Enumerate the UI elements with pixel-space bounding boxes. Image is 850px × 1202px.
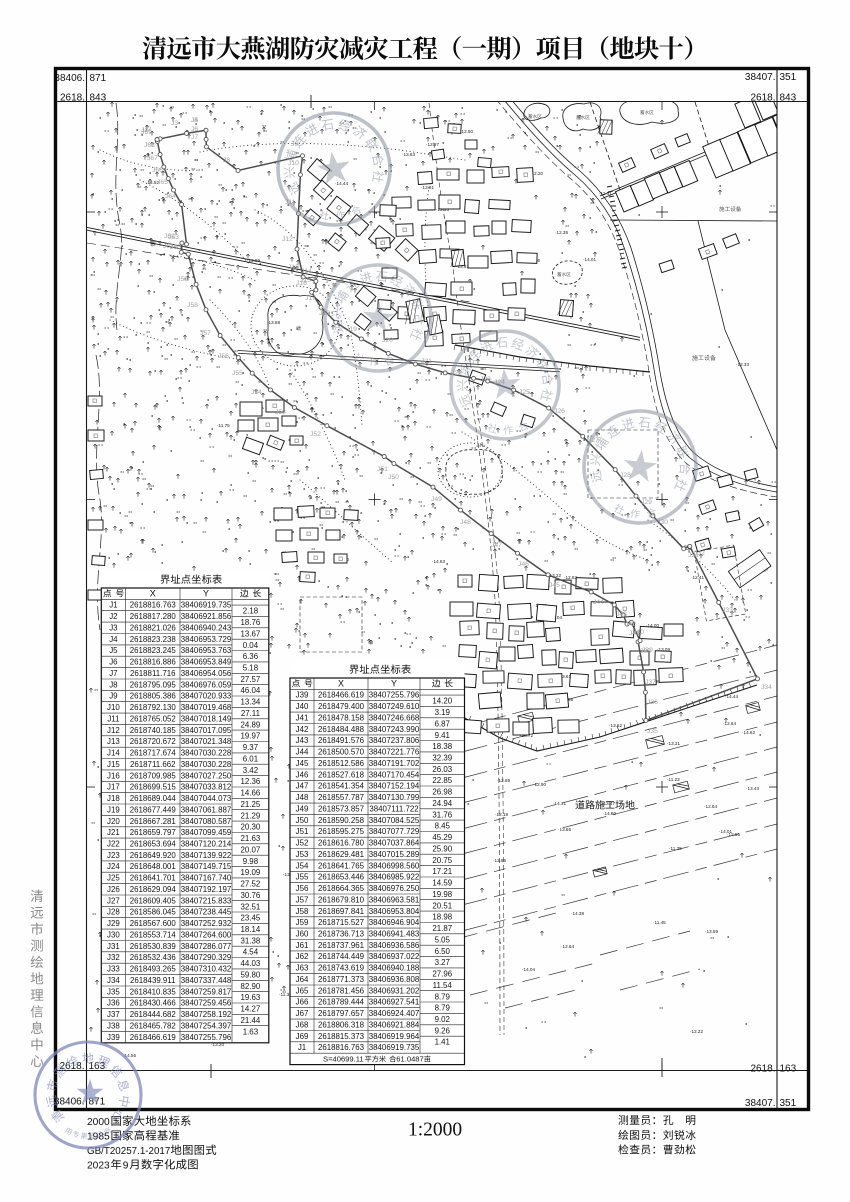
svg-text:2618530.839: 2618530.839 [130,942,177,951]
svg-text:2618667.281: 2618667.281 [130,817,176,826]
svg-text:38407215.833: 38407215.833 [181,896,232,905]
svg-text:J56: J56 [296,884,309,893]
svg-text:J27: J27 [107,896,120,905]
svg-text:38407111.722: 38407111.722 [369,804,418,813]
svg-text:38407246.668: 38407246.668 [369,714,420,723]
svg-text:38406953.729: 38406953.729 [181,635,232,644]
svg-text:2618781.456: 2618781.456 [318,986,365,995]
svg-text:27.57: 27.57 [241,675,261,684]
svg-text:J15: J15 [107,760,120,769]
svg-text:38407152.194: 38407152.194 [369,782,420,791]
svg-text:38407238.445: 38407238.445 [181,908,232,917]
svg-text:J10: J10 [107,703,120,712]
svg-text:27.52: 27.52 [241,880,261,889]
svg-text:·14.01: ·14.01 [583,257,596,262]
svg-text:J68: J68 [296,1021,309,1030]
svg-text:J1: J1 [109,601,117,610]
svg-text:9.98: 9.98 [243,857,259,866]
svg-text:8.45: 8.45 [435,822,451,831]
svg-text:2618465.782: 2618465.782 [130,1021,176,1030]
svg-text:871: 871 [90,73,107,84]
svg-text:2618765.052: 2618765.052 [130,714,176,723]
svg-text:J60: J60 [296,930,309,939]
svg-text:12.36: 12.36 [241,777,261,786]
svg-text:·14.04: ·14.04 [522,967,535,972]
svg-text:27.96: 27.96 [432,970,452,979]
svg-text:X: X [150,589,156,599]
svg-text:38406927.541: 38406927.541 [369,998,419,1007]
svg-text:J63: J63 [168,234,179,241]
svg-text:2618806.318: 2618806.318 [318,1021,365,1030]
svg-text:2618711.662: 2618711.662 [130,760,176,769]
svg-text:2618740.185: 2618740.185 [130,726,177,735]
svg-text:J49: J49 [431,496,442,503]
svg-text:J26: J26 [107,885,120,894]
svg-text:38407.: 38407. [745,72,776,83]
svg-text:59.80: 59.80 [241,971,261,980]
svg-text:·13.59: ·13.59 [705,929,718,934]
svg-text:2.18: 2.18 [243,607,259,616]
svg-text:38407255.796: 38407255.796 [369,691,420,700]
svg-text:9.26: 9.26 [435,1026,451,1035]
svg-text:14.59: 14.59 [432,879,452,888]
svg-text:J65: J65 [296,986,309,995]
svg-text:20.30: 20.30 [241,823,261,832]
svg-text:J55: J55 [296,873,309,882]
svg-text:38407020.933: 38407020.933 [181,692,232,701]
svg-text:843: 843 [780,93,797,104]
svg-text:0.04: 0.04 [243,641,259,650]
svg-text:2618478.158: 2618478.158 [318,714,365,723]
svg-text:J66: J66 [152,167,163,174]
svg-text:2618500.570: 2618500.570 [318,748,365,757]
svg-text:38406953.849: 38406953.849 [181,658,232,667]
svg-text:38406931.202: 38406931.202 [369,986,419,995]
svg-text:2618567.600: 2618567.600 [130,919,177,928]
svg-text:18.38: 18.38 [432,742,452,751]
svg-text:J44: J44 [296,748,309,757]
svg-text:26.98: 26.98 [432,788,452,797]
svg-text:J63: J63 [296,964,309,973]
svg-text:843: 843 [90,93,107,104]
svg-text:J16: J16 [107,771,120,780]
svg-text:J39: J39 [107,1033,120,1042]
svg-text:2618541.354: 2618541.354 [318,782,365,791]
svg-text:2618805.386: 2618805.386 [130,692,177,701]
svg-text:20.07: 20.07 [241,845,261,854]
svg-text:J53: J53 [296,850,309,859]
svg-text:2618653.446: 2618653.446 [318,873,365,882]
svg-text:38407037.864: 38407037.864 [369,839,420,848]
svg-text:·12.85: ·12.85 [493,858,506,863]
svg-text:38407099.459: 38407099.459 [181,828,232,837]
svg-text:J45: J45 [549,582,560,589]
svg-text:2618792.130: 2618792.130 [130,703,177,712]
svg-text:11.54: 11.54 [433,981,453,990]
svg-text:J20: J20 [382,337,393,344]
svg-text:·13.68: ·13.68 [267,320,280,325]
svg-text:J34: J34 [107,976,120,985]
svg-text:21.29: 21.29 [241,811,261,820]
svg-text:2618817.280: 2618817.280 [130,612,177,621]
svg-text:38407030.228: 38407030.228 [181,749,232,758]
svg-text:38406976.250: 38406976.250 [369,884,420,893]
svg-text:38407077.729: 38407077.729 [369,827,420,836]
svg-text:9.37: 9.37 [243,743,258,752]
svg-text:2618823.245: 2618823.245 [130,646,177,655]
svg-text:38407252.932: 38407252.932 [181,919,231,928]
svg-text:9.41: 9.41 [435,731,450,740]
svg-text:J25: J25 [519,389,530,396]
svg-text:2618811.716: 2618811.716 [130,669,176,678]
svg-text:·12.87: ·12.87 [426,142,439,147]
svg-text:2618664.365: 2618664.365 [318,884,365,893]
svg-text:J13: J13 [107,737,120,746]
svg-text:38406940.188: 38406940.188 [369,964,420,973]
svg-text:38406953.763: 38406953.763 [181,646,232,655]
svg-text:J47: J47 [296,782,309,791]
svg-text:·11.45: ·11.45 [653,920,666,925]
svg-text:J40: J40 [296,702,309,711]
svg-text:38407.: 38407. [745,1098,776,1109]
svg-text:2618491.576: 2618491.576 [318,736,365,745]
svg-text:J68: J68 [144,142,155,149]
svg-text:J35: J35 [107,987,120,996]
svg-text:38406921.856: 38406921.856 [181,612,232,621]
svg-text:J64: J64 [296,975,309,984]
svg-text:J59: J59 [296,918,309,927]
svg-text:2618444.682: 2618444.682 [130,1010,176,1019]
svg-text:2618641.701: 2618641.701 [130,874,176,883]
svg-text:J65: J65 [157,179,168,186]
svg-text:J69: J69 [296,1032,309,1041]
svg-text:J1: J1 [141,127,148,134]
svg-text:38406936.808: 38406936.808 [369,975,420,984]
svg-text:·14.63: ·14.63 [432,559,445,564]
svg-text:38407021.348: 38407021.348 [181,737,232,746]
svg-text:Y: Y [203,589,209,599]
svg-text:J38: J38 [107,1021,120,1030]
svg-text:J7: J7 [109,669,117,678]
svg-text:·14.38: ·14.38 [571,911,584,916]
svg-text:163: 163 [780,1064,797,1075]
svg-text:9.02: 9.02 [435,1015,450,1024]
svg-text:2618743.619: 2618743.619 [318,964,365,973]
svg-text:J67: J67 [296,1009,309,1018]
svg-text:J20: J20 [107,817,120,826]
svg-text:13.67: 13.67 [241,629,261,638]
svg-text:17.21: 17.21 [432,867,452,876]
svg-text:6.01: 6.01 [243,754,258,763]
svg-text:38407044.073: 38407044.073 [181,794,232,803]
svg-text:J37: J37 [107,1010,120,1019]
svg-text:14.20: 14.20 [432,697,452,706]
svg-text:2618629.481: 2618629.481 [318,850,364,859]
svg-text:·13.65: ·13.65 [558,827,571,832]
svg-text:·12.22: ·12.22 [690,1029,703,1034]
svg-text:4.54: 4.54 [243,948,259,957]
svg-text:·14.31: ·14.31 [553,801,566,806]
svg-text:2618649.920: 2618649.920 [130,851,177,860]
svg-text:J23: J23 [107,851,120,860]
svg-text:2618616.780: 2618616.780 [318,839,365,848]
svg-text:2618648.001: 2618648.001 [130,862,176,871]
svg-text:19.98: 19.98 [432,890,452,899]
svg-text:J46: J46 [296,770,309,779]
svg-text:J5: J5 [191,117,198,124]
svg-text:38407192.197: 38407192.197 [181,885,231,894]
svg-text:J16: J16 [296,280,307,287]
svg-text:J50: J50 [296,816,309,825]
svg-text:J36: J36 [107,999,120,1008]
svg-text:J12: J12 [282,236,293,243]
svg-text:2618410.835: 2618410.835 [130,987,177,996]
svg-text:2618484.488: 2618484.488 [318,725,365,734]
svg-text:J34: J34 [761,684,772,691]
svg-text:·12.41: ·12.41 [691,575,704,580]
svg-text:38407255.796: 38407255.796 [181,1033,232,1042]
svg-text:J57: J57 [200,330,211,337]
svg-text:38407249.610: 38407249.610 [369,702,420,711]
svg-text:J6: J6 [191,126,198,133]
svg-text:J5: J5 [109,646,118,655]
svg-text:38407237.806: 38407237.806 [369,736,420,745]
svg-text:38407167.740: 38407167.740 [181,874,232,883]
svg-text:·13.81: ·13.81 [421,185,434,190]
svg-text:38406.: 38406. [54,1097,85,1108]
svg-text:2618821.026: 2618821.026 [130,624,177,633]
svg-text:J17: J17 [305,295,316,302]
svg-text:38406919.735: 38406919.735 [181,601,232,610]
svg-text:38407259.456: 38407259.456 [181,999,232,1008]
svg-text:J45: J45 [296,759,309,768]
svg-text:38407033.812: 38407033.812 [181,783,231,792]
svg-text:38407258.192: 38407258.192 [181,1010,231,1019]
svg-text:1.63: 1.63 [243,1027,259,1036]
svg-text:·13.43: ·13.43 [746,786,759,791]
svg-text:J21: J21 [107,828,120,837]
svg-text:J54: J54 [251,389,262,396]
svg-text:38407018.149: 38407018.149 [181,714,232,723]
svg-text:J28: J28 [107,908,120,917]
svg-text:21.63: 21.63 [241,834,261,843]
svg-text:38406940.243: 38406940.243 [181,624,232,633]
svg-text:46.04: 46.04 [241,686,261,695]
svg-text:21.44: 21.44 [241,1016,261,1025]
svg-text:22.85: 22.85 [432,776,452,785]
svg-text:38407139.922: 38407139.922 [181,851,231,860]
svg-text:3.19: 3.19 [435,708,451,717]
svg-text:26.03: 26.03 [432,765,452,774]
svg-text:J29: J29 [107,919,120,928]
svg-text:38407130.799: 38407130.799 [369,793,420,802]
svg-text:24.89: 24.89 [241,720,261,729]
svg-text:J51: J51 [296,827,309,836]
svg-text:18.14: 18.14 [241,925,261,934]
svg-text:J58: J58 [296,907,309,916]
svg-text:2618609.405: 2618609.405 [130,896,177,905]
svg-text:·14.62: ·14.62 [742,730,755,735]
svg-text:J6: J6 [109,658,118,667]
svg-text:J47: J47 [491,542,502,549]
svg-text:38406954.056: 38406954.056 [181,669,232,678]
svg-text:38406998.560: 38406998.560 [369,861,420,870]
svg-text:2618816.763: 2618816.763 [318,1043,365,1052]
svg-text:J3: J3 [171,120,178,127]
svg-text:21.25: 21.25 [241,800,261,809]
svg-text:2618532.436: 2618532.436 [130,953,177,962]
svg-text:19.63: 19.63 [241,993,261,1002]
svg-text:24.94: 24.94 [432,799,452,808]
svg-text:2618.: 2618. [750,1064,775,1075]
svg-text:38406937.022: 38406937.022 [369,952,419,961]
svg-text:J4: J4 [109,635,118,644]
svg-text:J59: J59 [177,276,188,283]
svg-text:J53: J53 [275,409,286,416]
svg-text:2618679.810: 2618679.810 [318,895,365,904]
svg-text:J61: J61 [163,243,174,250]
svg-text:J30: J30 [107,931,120,940]
svg-text:J50: J50 [388,474,399,481]
svg-text:38406963.581: 38406963.581 [369,895,419,904]
svg-text:J35: J35 [647,728,658,735]
svg-text:J62: J62 [296,952,309,961]
svg-text:Y: Y [391,679,397,689]
svg-text:38407221.776: 38407221.776 [369,748,420,757]
svg-text:23.45: 23.45 [241,914,261,923]
svg-text:2618709.985: 2618709.985 [130,771,177,780]
svg-text:J43: J43 [296,736,309,745]
svg-text:2618586.045: 2618586.045 [130,908,177,917]
svg-text:J42: J42 [625,621,636,628]
svg-text:J14: J14 [107,749,120,758]
svg-text:27.11: 27.11 [241,709,260,718]
svg-text:38407149.715: 38407149.715 [181,862,232,871]
svg-text:J2: J2 [109,612,117,621]
svg-text:20.51: 20.51 [432,901,452,910]
svg-text:3.27: 3.27 [435,958,450,967]
svg-text:2618771.373: 2618771.373 [318,975,365,984]
svg-text:21.87: 21.87 [432,924,452,933]
svg-text:·13.63: ·13.63 [402,152,415,157]
svg-text:38407061.887: 38407061.887 [181,805,231,814]
svg-text:J52: J52 [310,431,321,438]
svg-text:38407027.250: 38407027.250 [181,771,232,780]
svg-text:38406921.884: 38406921.884 [369,1021,420,1030]
svg-text:J10: J10 [288,160,299,167]
svg-text:·12.69: ·12.69 [497,778,510,783]
svg-text:2618823.238: 2618823.238 [130,635,177,644]
svg-text:J51: J51 [377,466,388,473]
svg-text:38407259.817: 38407259.817 [181,987,231,996]
svg-text:6.50: 6.50 [435,947,451,956]
svg-text:X: X [338,679,344,689]
svg-text:38406919.964: 38406919.964 [369,1032,420,1041]
svg-text:2618553.714: 2618553.714 [130,931,177,940]
svg-text:2618466.619: 2618466.619 [318,691,365,700]
svg-text:38406976.059: 38406976.059 [181,680,232,689]
svg-text:J29: J29 [641,499,652,506]
svg-text:38406946.904: 38406946.904 [369,918,420,927]
svg-text:J8: J8 [109,680,118,689]
svg-text:38407120.214: 38407120.214 [181,840,232,849]
svg-text:38407286.077: 38407286.077 [181,942,231,951]
svg-text:19.97: 19.97 [241,732,261,741]
svg-text:38406941.483: 38406941.483 [369,930,420,939]
svg-text:38407019.468: 38407019.468 [181,703,232,712]
svg-text:J21: J21 [421,358,432,365]
svg-text:J11: J11 [107,714,119,723]
svg-text:38407080.587: 38407080.587 [181,817,231,826]
svg-text:·14.44: ·14.44 [335,181,348,186]
svg-text:J41: J41 [629,630,640,637]
svg-text:61.0487: 61.0487 [396,1055,423,1064]
svg-text:2618815.373: 2618815.373 [318,1032,365,1041]
svg-text:38407264.600: 38407264.600 [181,931,232,940]
svg-text:38407170.454: 38407170.454 [369,770,420,779]
svg-text:J52: J52 [296,839,309,848]
svg-text:2618595.275: 2618595.275 [318,827,365,836]
svg-text:25.90: 25.90 [432,844,452,853]
svg-text:J39: J39 [642,647,653,654]
svg-text:38407254.397: 38407254.397 [181,1021,231,1030]
svg-text:J24: J24 [107,862,120,871]
svg-text:J9: J9 [109,692,118,701]
svg-text:2618430.466: 2618430.466 [130,999,177,1008]
svg-text:·12.62: ·12.62 [564,575,577,580]
svg-text:2618697.841: 2618697.841 [318,907,364,916]
svg-text:J37: J37 [645,679,656,686]
svg-text:·13.62: ·13.62 [609,723,622,728]
svg-text:32.51: 32.51 [241,902,261,911]
svg-text:2000: 2000 [87,1117,110,1128]
svg-text:J46: J46 [518,561,529,568]
svg-text:J36: J36 [647,699,658,706]
svg-text:2618.: 2618. [60,93,85,104]
svg-text:2618744.449: 2618744.449 [318,952,365,961]
svg-text:·14.01: ·14.01 [719,829,732,834]
svg-text:·12.64: ·12.64 [561,944,574,949]
svg-text:·12.35: ·12.35 [555,230,568,235]
svg-text:J33: J33 [722,607,733,614]
svg-text:J13: J13 [288,264,299,271]
svg-text:2618720.672: 2618720.672 [130,737,176,746]
svg-text:2618439.911: 2618439.911 [130,976,176,985]
svg-text:2618816.886: 2618816.886 [130,658,177,667]
svg-text:38407084.525: 38407084.525 [369,816,420,825]
svg-text:32.39: 32.39 [432,754,452,763]
svg-text:8.79: 8.79 [435,1004,451,1013]
svg-text:20.75: 20.75 [432,856,452,865]
svg-text:J26: J26 [554,408,565,415]
svg-text:J39: J39 [296,691,309,700]
svg-text:J67: J67 [147,155,158,162]
svg-text:18.98: 18.98 [432,913,452,922]
svg-text:J19: J19 [346,326,357,333]
svg-text:J22: J22 [107,840,120,849]
svg-text:19.09: 19.09 [241,868,261,877]
svg-text:J44: J44 [593,599,604,606]
svg-text:38407310.432: 38407310.432 [181,965,231,974]
svg-text:J33: J33 [107,965,120,974]
svg-text:351: 351 [780,1098,797,1109]
svg-text:2618527.618: 2618527.618 [318,770,365,779]
svg-text:2023: 2023 [87,1161,110,1172]
svg-text:·12.50: ·12.50 [460,129,473,134]
svg-text:38406936.586: 38406936.586 [369,941,420,950]
svg-text:5.18: 5.18 [243,664,259,673]
svg-text:J48: J48 [296,793,309,802]
